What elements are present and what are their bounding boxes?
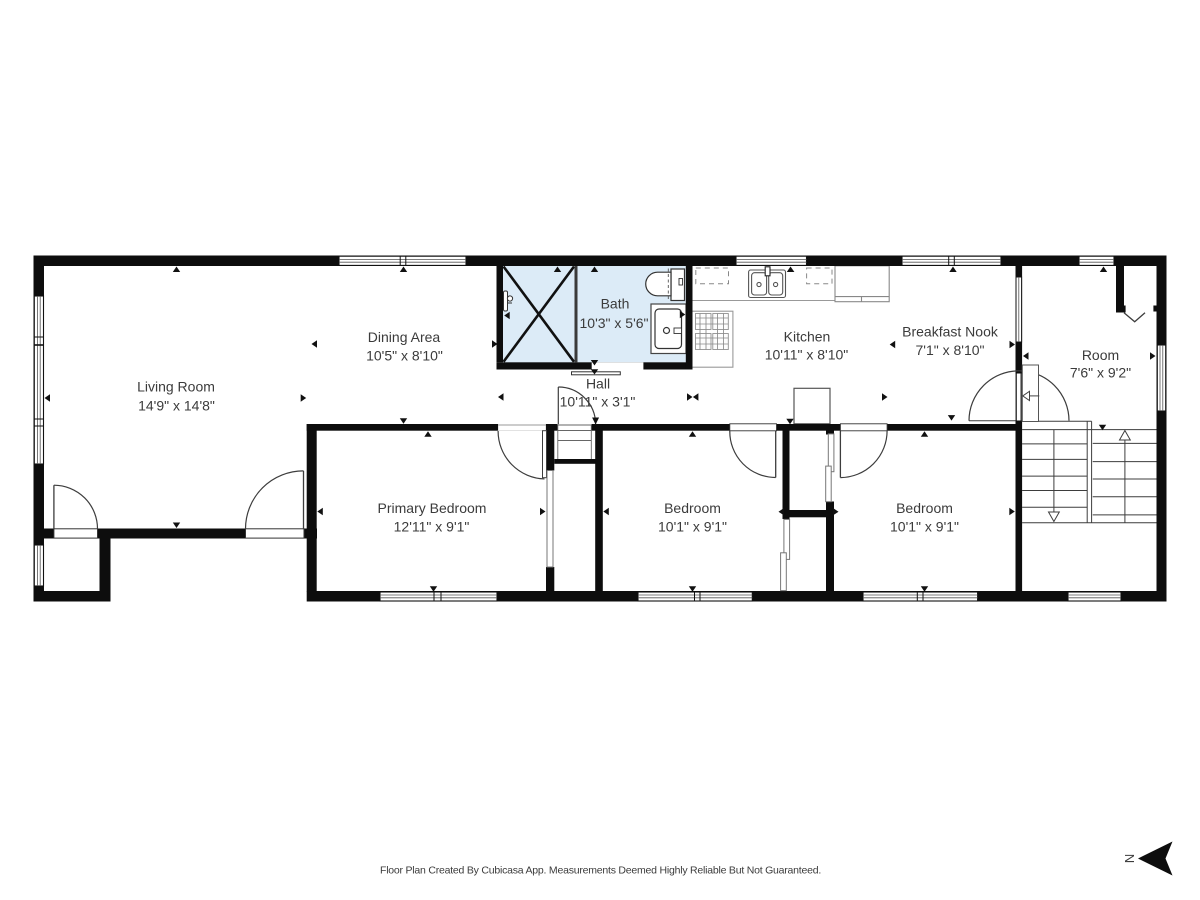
svg-text:12'11" x 9'1": 12'11" x 9'1" — [394, 519, 470, 535]
svg-text:7'1" x 8'10": 7'1" x 8'10" — [916, 342, 985, 358]
svg-text:Bath: Bath — [601, 296, 630, 312]
svg-text:Dining Area: Dining Area — [368, 329, 441, 345]
svg-text:Room: Room — [1082, 347, 1119, 363]
svg-text:10'5" x 8'10": 10'5" x 8'10" — [366, 348, 443, 364]
svg-text:Floor Plan Created By Cubicasa: Floor Plan Created By Cubicasa App. Meas… — [380, 865, 821, 877]
svg-text:10'11" x 8'10": 10'11" x 8'10" — [765, 347, 849, 363]
svg-text:10'11" x 3'1": 10'11" x 3'1" — [560, 394, 636, 410]
svg-text:Bedroom: Bedroom — [664, 500, 721, 516]
svg-text:Hall: Hall — [586, 376, 610, 392]
svg-text:10'1" x 9'1": 10'1" x 9'1" — [658, 519, 727, 535]
svg-text:Breakfast Nook: Breakfast Nook — [902, 324, 999, 340]
svg-text:14'9" x 14'8": 14'9" x 14'8" — [138, 398, 215, 414]
svg-text:Living Room: Living Room — [137, 379, 215, 395]
svg-text:Kitchen: Kitchen — [784, 329, 831, 345]
svg-text:10'1" x 9'1": 10'1" x 9'1" — [890, 519, 959, 535]
svg-text:N: N — [1122, 854, 1137, 863]
svg-text:10'3" x 5'6": 10'3" x 5'6" — [580, 315, 649, 331]
svg-text:7'6" x 9'2": 7'6" x 9'2" — [1070, 365, 1131, 381]
svg-text:Primary Bedroom: Primary Bedroom — [378, 500, 487, 516]
svg-text:Bedroom: Bedroom — [896, 500, 953, 516]
